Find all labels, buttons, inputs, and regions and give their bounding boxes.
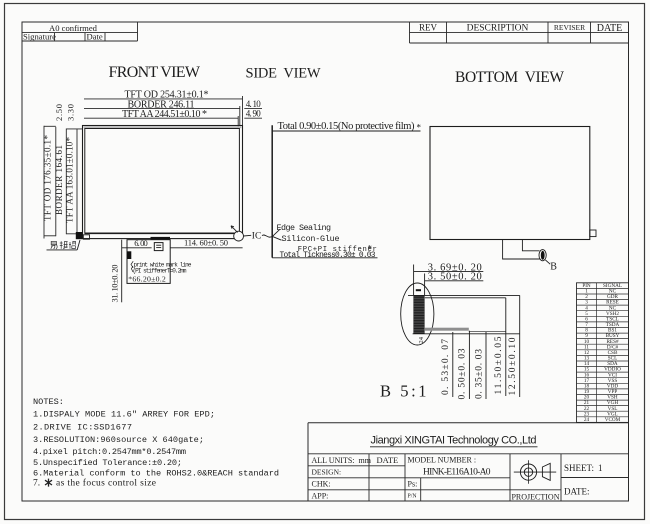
svg-text:114. 60±0. 50: 114. 60±0. 50 xyxy=(184,238,228,248)
svg-text:BORDER 164.61: BORDER 164.61 xyxy=(54,145,64,215)
svg-text:SIDE VIEW: SIDE VIEW xyxy=(246,66,323,82)
svg-text:6. 00: 6. 00 xyxy=(134,238,148,248)
svg-text:6.Material conform to the ROHS: 6.Material conform to the ROHS2.0&REACH … xyxy=(33,468,279,478)
svg-text:TFT AA 163.01±0.10*: TFT AA 163.01±0.10* xyxy=(64,137,74,224)
svg-text:BOTTOM VIEW: BOTTOM VIEW xyxy=(455,69,565,86)
svg-text:Signature: Signature xyxy=(23,32,56,42)
svg-text:3.RESOLUTION:960source X 640ga: 3.RESOLUTION:960source X 640gate; xyxy=(33,435,204,445)
svg-text:Silicon-Glue: Silicon-Glue xyxy=(282,234,340,244)
svg-text:PROJECTION: PROJECTION xyxy=(511,492,559,501)
svg-text:DATE: DATE xyxy=(377,455,399,465)
svg-text:0. 53±0. 07: 0. 53±0. 07 xyxy=(441,339,451,395)
svg-text:Date: Date xyxy=(87,32,103,42)
svg-text:4. 90: 4. 90 xyxy=(246,109,261,119)
svg-text:Jiangxi XINGTAI Technology CO.: Jiangxi XINGTAI Technology CO.,Ltd xyxy=(371,435,537,447)
svg-text:VCOM: VCOM xyxy=(605,417,621,423)
svg-text:IC: IC xyxy=(252,232,261,242)
svg-text:2.DRIVE IC:SSD1677: 2.DRIVE IC:SSD1677 xyxy=(33,422,132,432)
svg-text:NOTES:: NOTES: xyxy=(33,397,64,407)
svg-text:3.30: 3.30 xyxy=(66,104,76,121)
svg-text:*66.20±0.2: *66.20±0.2 xyxy=(128,274,166,283)
svg-text:2.50: 2.50 xyxy=(54,104,64,121)
svg-text:4. 10: 4. 10 xyxy=(246,99,261,109)
svg-text:MODEL NUMBER :: MODEL NUMBER : xyxy=(408,455,477,464)
svg-text:DATE: DATE xyxy=(597,23,623,34)
svg-text:FRONT VIEW: FRONT VIEW xyxy=(109,64,201,81)
svg-text:ALL UNITS: mm: ALL UNITS: mm xyxy=(312,456,372,465)
svg-text:TFT OD 176.35±0.1*: TFT OD 176.35±0.1* xyxy=(43,135,53,222)
svg-text:REVISER: REVISER xyxy=(554,23,585,32)
svg-text:DESCRIPTION: DESCRIPTION xyxy=(467,24,529,34)
svg-text:Edge Sealing: Edge Sealing xyxy=(277,223,332,233)
svg-text:(PI stiffenerT=0.2mm: (PI stiffenerT=0.2mm xyxy=(133,267,187,274)
svg-text:P/N: P/N xyxy=(408,493,418,499)
svg-text:24: 24 xyxy=(418,336,425,343)
svg-text:1.DISPALY MODE 11.6″ ARREY FOR: 1.DISPALY MODE 11.6″ ARREY FOR EPD; xyxy=(33,410,215,420)
svg-text:SHEET:: SHEET: xyxy=(564,463,594,473)
svg-text:Total Tickness0.30± 0.03: Total Tickness0.30± 0.03 xyxy=(280,251,376,260)
svg-text:0. 50±0. 03: 0. 50±0. 03 xyxy=(458,348,468,399)
svg-text:4.pixel pitch:0.2547mm*0.2547m: 4.pixel pitch:0.2547mm*0.2547mm xyxy=(33,447,186,457)
svg-text:11.50±0.05: 11.50±0.05 xyxy=(494,336,504,394)
svg-text:31. 10±0. 20: 31. 10±0. 20 xyxy=(110,265,120,303)
svg-text:CHK:: CHK: xyxy=(312,480,331,489)
svg-text:APP:: APP: xyxy=(312,492,329,501)
svg-text:24: 24 xyxy=(584,417,590,423)
svg-text:REV: REV xyxy=(419,22,438,32)
svg-text:7.: 7. xyxy=(33,478,40,488)
svg-text:1: 1 xyxy=(598,463,603,473)
svg-text:Ps:: Ps: xyxy=(408,479,418,488)
svg-text:as the focus control size: as the focus control size xyxy=(56,477,156,488)
svg-text:0. 35±0. 03: 0. 35±0. 03 xyxy=(474,349,484,399)
svg-text:DATE:: DATE: xyxy=(564,486,590,496)
svg-text:DESIGN:: DESIGN: xyxy=(312,468,342,477)
svg-text:Total 0.90±0.15(No protective: Total 0.90±0.15(No protective film) xyxy=(278,121,416,132)
svg-text:HINK-E116A10-A0: HINK-E116A10-A0 xyxy=(423,467,491,477)
svg-text:*: * xyxy=(368,244,373,254)
svg-text:B: B xyxy=(550,261,557,272)
svg-text:12.50±0.10: 12.50±0.10 xyxy=(508,337,518,395)
svg-text:5.Unspecified Tolerance:±0.20;: 5.Unspecified Tolerance:±0.20; xyxy=(33,458,182,468)
svg-text:B 5:1: B 5:1 xyxy=(380,382,427,401)
